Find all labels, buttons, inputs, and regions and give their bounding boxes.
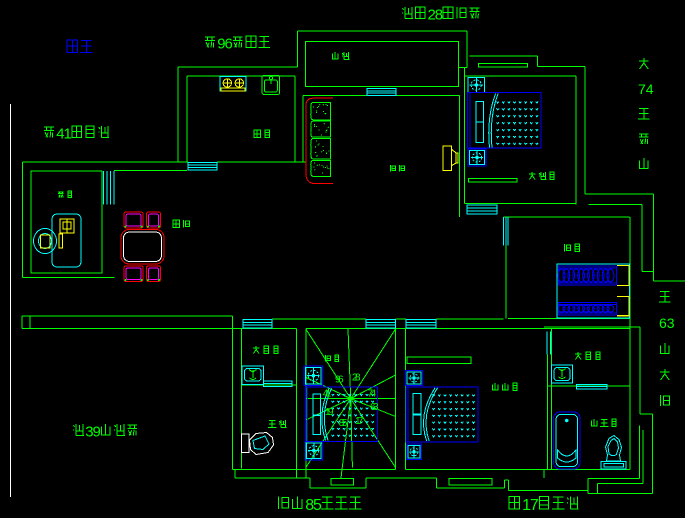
svg-text:74: 74 xyxy=(368,389,377,400)
svg-text:8: 8 xyxy=(435,6,443,23)
svg-text:5: 5 xyxy=(313,497,322,514)
svg-text:41: 41 xyxy=(323,389,332,400)
svg-text:17: 17 xyxy=(355,416,364,427)
svg-text:7: 7 xyxy=(530,497,539,514)
svg-text:63: 63 xyxy=(370,402,379,413)
svg-text:1: 1 xyxy=(64,125,72,142)
svg-text:74: 74 xyxy=(638,81,654,97)
svg-text:28: 28 xyxy=(352,373,361,384)
svg-text:96: 96 xyxy=(335,375,344,386)
svg-text:9: 9 xyxy=(93,423,101,440)
svg-text:63: 63 xyxy=(659,315,675,331)
svg-text:85: 85 xyxy=(339,418,348,429)
svg-text:19: 19 xyxy=(325,407,334,418)
svg-text:6: 6 xyxy=(225,35,233,52)
